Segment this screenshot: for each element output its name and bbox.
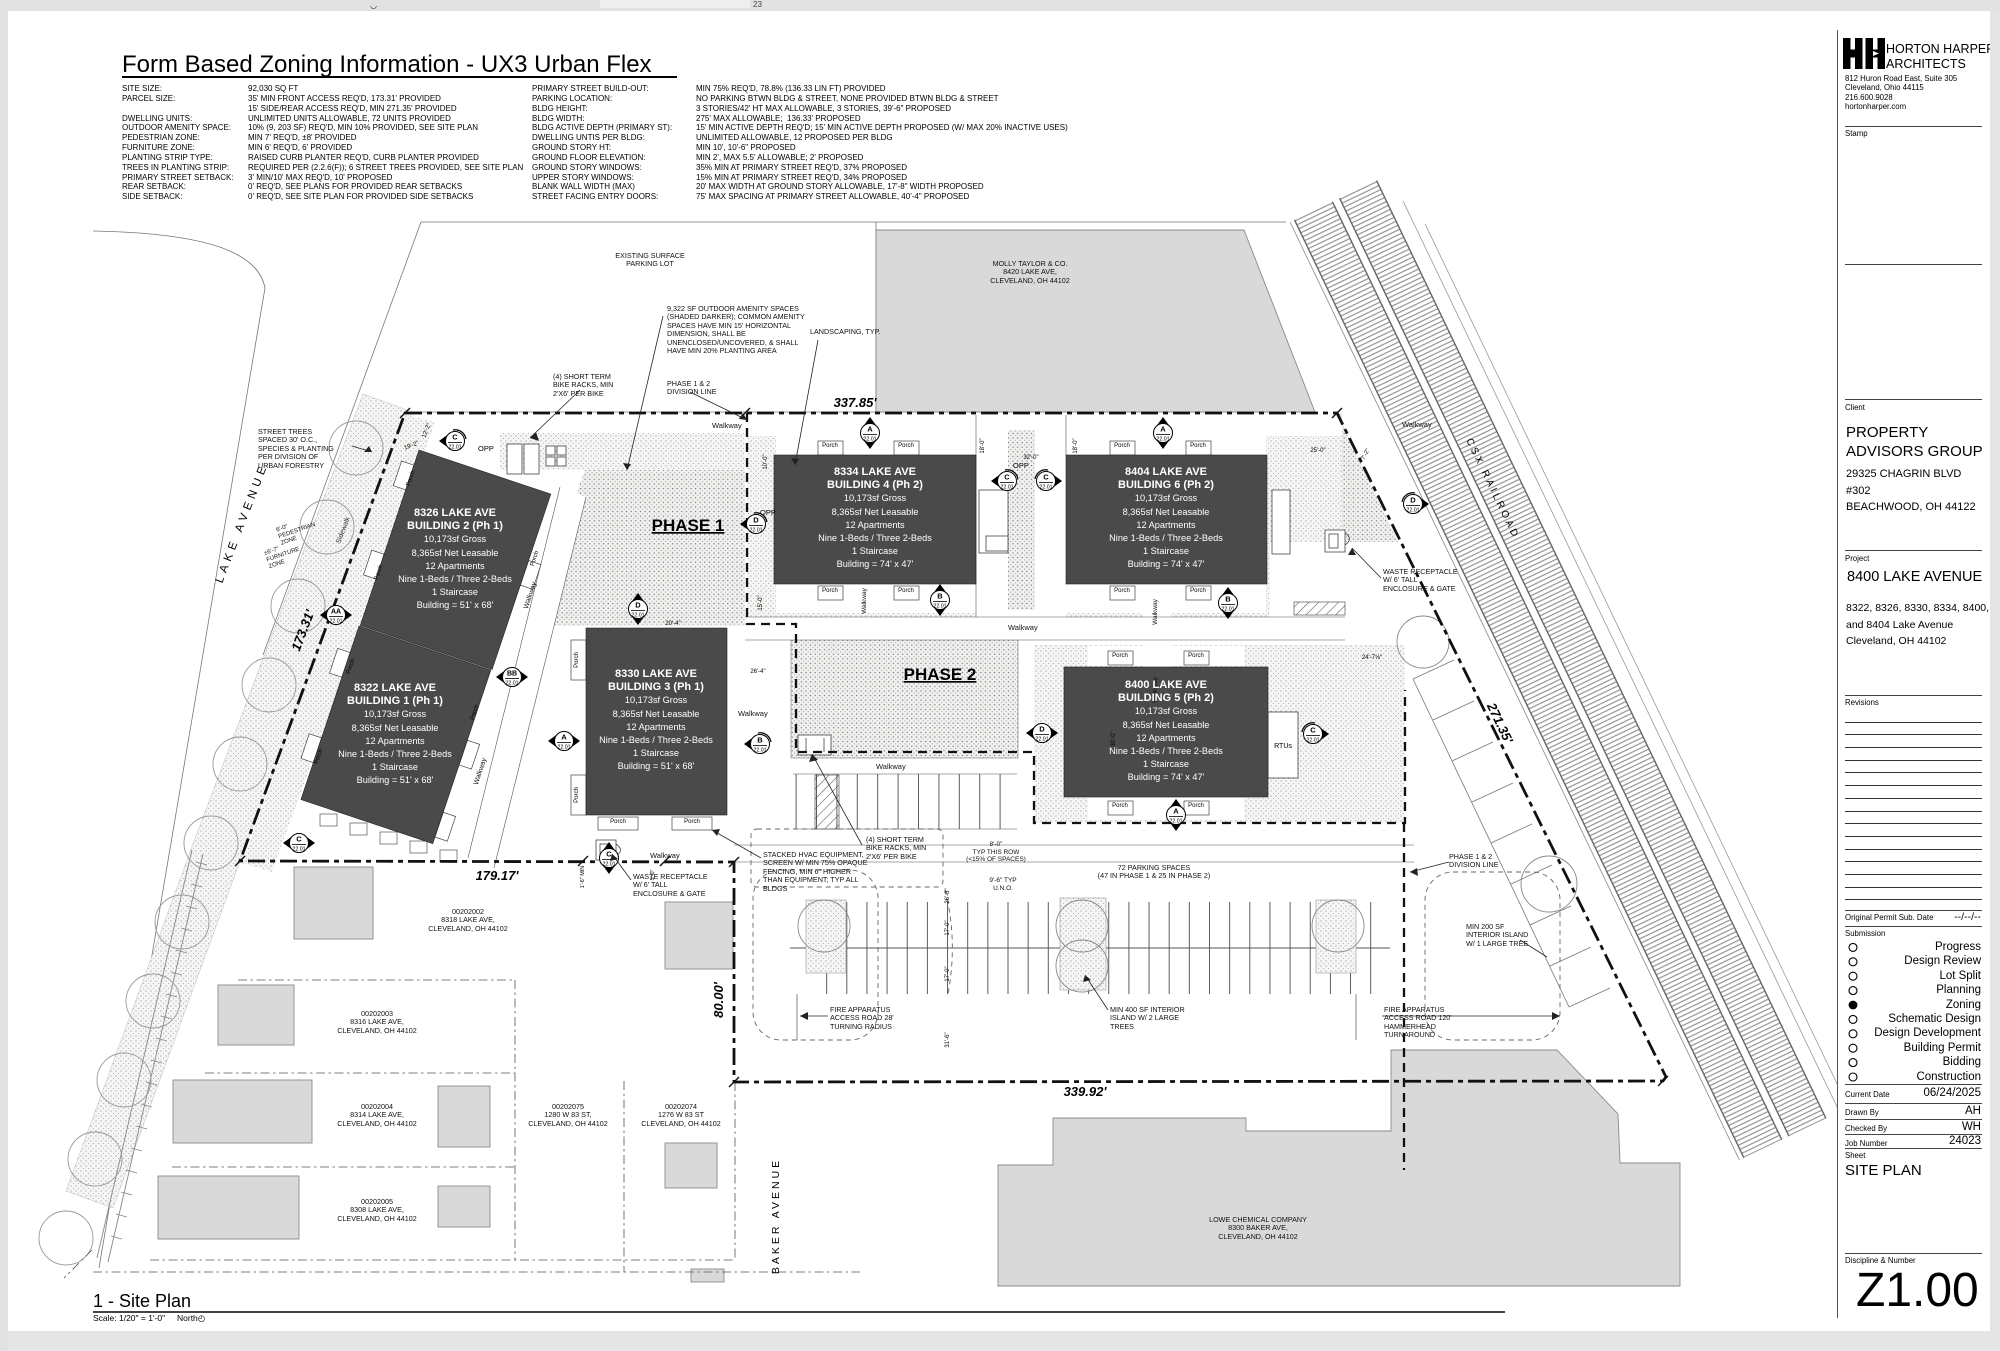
- svg-text:22.01: 22.01: [1221, 607, 1234, 613]
- svg-text:A: A: [561, 733, 567, 742]
- svg-text:22.01: 22.01: [749, 528, 762, 534]
- svg-text:Porch: Porch: [574, 787, 580, 803]
- svg-text:Porch: Porch: [684, 819, 700, 825]
- svg-text:22.01: 22.01: [505, 681, 518, 687]
- svg-text:C: C: [1310, 726, 1316, 735]
- svg-text:Walkway: Walkway: [738, 709, 768, 718]
- svg-text:26'-4": 26'-4": [750, 669, 765, 675]
- svg-text:Porch: Porch: [610, 819, 626, 825]
- svg-text:C: C: [1004, 473, 1010, 482]
- svg-text:18'-0": 18'-0": [980, 438, 986, 453]
- svg-text:C: C: [1043, 473, 1049, 482]
- svg-text:20'-4": 20'-4": [665, 621, 680, 627]
- svg-text:22.01: 22.01: [329, 619, 342, 625]
- svg-text:Porch: Porch: [822, 443, 838, 449]
- svg-text:17'-0": 17'-0": [945, 966, 951, 981]
- svg-text:80.00': 80.00': [711, 981, 726, 1018]
- svg-text:PHASE 1: PHASE 1: [652, 516, 725, 535]
- svg-text:22.01: 22.01: [753, 748, 766, 754]
- svg-text:D: D: [1410, 496, 1416, 505]
- svg-text:Porch: Porch: [1190, 588, 1206, 594]
- svg-text:AA: AA: [331, 609, 341, 616]
- svg-text:22.01: 22.01: [1156, 437, 1169, 443]
- svg-text:Porch: Porch: [1112, 803, 1128, 809]
- svg-text:OPP: OPP: [1013, 461, 1029, 470]
- svg-text:D: D: [635, 601, 641, 610]
- svg-text:Porch: Porch: [1114, 443, 1130, 449]
- svg-text:22.01: 22.01: [448, 445, 461, 451]
- svg-text:Porch: Porch: [574, 652, 580, 668]
- svg-text:339.92': 339.92': [1064, 1084, 1108, 1099]
- svg-text:15'-0": 15'-0": [758, 595, 764, 610]
- svg-text:Walkway: Walkway: [712, 421, 742, 430]
- svg-text:B: B: [1225, 595, 1231, 604]
- svg-text:24'-7⅝": 24'-7⅝": [1362, 655, 1382, 661]
- svg-text:LAKE AVENUE: LAKE AVENUE: [214, 461, 271, 585]
- svg-text:22.01: 22.01: [557, 745, 570, 751]
- svg-text:Porch: Porch: [898, 443, 914, 449]
- svg-text:B: B: [757, 736, 763, 745]
- svg-text:Porch: Porch: [1190, 443, 1206, 449]
- svg-text:22.01: 22.01: [292, 847, 305, 853]
- svg-text:7'-2": 7'-2": [1361, 448, 1372, 461]
- svg-text:1'-6" MIN: 1'-6" MIN: [580, 866, 586, 889]
- svg-text:Porch: Porch: [1112, 653, 1128, 659]
- svg-text:Porch: Porch: [1114, 588, 1130, 594]
- svg-text:OPP: OPP: [478, 444, 494, 453]
- svg-text:Porch: Porch: [1188, 653, 1204, 659]
- svg-text:18'-0": 18'-0": [1073, 438, 1079, 453]
- svg-text:22.01: 22.01: [1169, 819, 1182, 825]
- svg-text:PHASE 2: PHASE 2: [904, 665, 977, 684]
- svg-text:Porch: Porch: [898, 588, 914, 594]
- svg-text:Walkway: Walkway: [1152, 598, 1159, 625]
- svg-text:Walkway: Walkway: [473, 757, 488, 786]
- svg-text:BB: BB: [507, 671, 517, 678]
- svg-text:C: C: [296, 835, 302, 844]
- svg-text:26'-8": 26'-8": [945, 888, 951, 903]
- svg-text:22.01: 22.01: [1039, 485, 1052, 491]
- svg-text:32'-0": 32'-0": [1023, 455, 1038, 461]
- svg-text:Porch: Porch: [1188, 803, 1204, 809]
- svg-text:D: D: [753, 516, 759, 525]
- svg-text:22.01: 22.01: [1035, 737, 1048, 743]
- svg-text:A: A: [1160, 425, 1166, 434]
- svg-text:BAKER AVENUE: BAKER AVENUE: [770, 1158, 782, 1274]
- svg-text:25'-0": 25'-0": [1310, 448, 1325, 454]
- svg-text:22.01: 22.01: [863, 437, 876, 443]
- svg-text:22.01: 22.01: [602, 862, 615, 868]
- svg-text:271.35': 271.35': [1484, 700, 1517, 747]
- svg-text:B: B: [937, 592, 943, 601]
- svg-text:Walkway: Walkway: [876, 762, 906, 771]
- svg-text:A: A: [1173, 807, 1179, 816]
- svg-text:Walkway: Walkway: [1402, 420, 1432, 429]
- svg-text:22.01: 22.01: [631, 613, 644, 619]
- svg-text:Walkway: Walkway: [650, 851, 680, 860]
- svg-text:Walkway: Walkway: [1008, 623, 1038, 632]
- svg-text:179.17': 179.17': [476, 868, 520, 883]
- svg-text:D: D: [1039, 725, 1045, 734]
- svg-text:OPP: OPP: [760, 508, 776, 517]
- svg-text:Walkway: Walkway: [861, 587, 868, 614]
- svg-text:22.01: 22.01: [1306, 738, 1319, 744]
- svg-text:10'-0": 10'-0": [763, 454, 769, 469]
- svg-text:Porch: Porch: [822, 588, 838, 594]
- svg-text:17'-0": 17'-0": [945, 920, 951, 935]
- svg-text:22.01: 22.01: [933, 604, 946, 610]
- svg-text:RTUs: RTUs: [1274, 743, 1292, 750]
- svg-text:337.85': 337.85': [834, 395, 878, 410]
- svg-text:22.01: 22.01: [1000, 485, 1013, 491]
- svg-text:A: A: [867, 425, 873, 434]
- svg-text:31'-6": 31'-6": [945, 1032, 951, 1047]
- svg-text:C: C: [452, 433, 458, 442]
- svg-text:22.01: 22.01: [1406, 508, 1419, 514]
